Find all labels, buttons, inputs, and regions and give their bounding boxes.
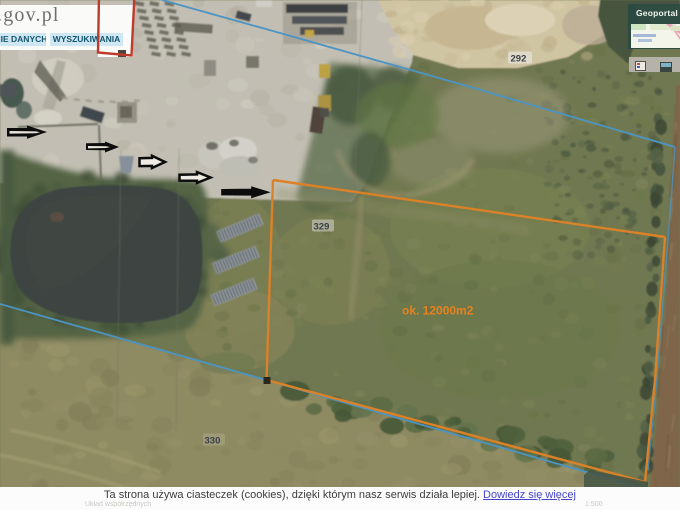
svg-text:292: 292 xyxy=(511,54,527,65)
svg-text:330: 330 xyxy=(205,436,221,447)
svg-text:329: 329 xyxy=(314,222,330,233)
svg-text:ok. 12000m2: ok. 12000m2 xyxy=(402,304,474,318)
